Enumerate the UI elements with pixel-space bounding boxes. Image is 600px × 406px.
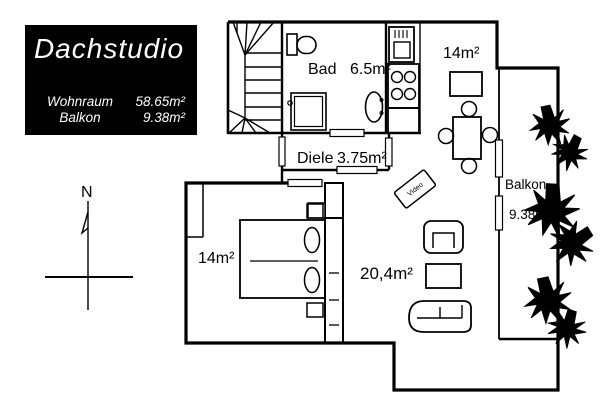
dining-chair	[462, 159, 477, 174]
dining-table	[453, 117, 481, 159]
balcony-plants	[520, 105, 600, 353]
armchair	[424, 221, 463, 253]
room-area-balkon: 9.38m²	[509, 207, 552, 222]
nightstand	[307, 303, 323, 317]
toilet-icon	[287, 34, 316, 55]
stairs-winder-top	[233, 22, 274, 55]
wall-hatch-ticks	[329, 273, 339, 325]
balcony-door-2	[496, 196, 503, 230]
double-bed	[240, 220, 325, 298]
kitchen	[388, 27, 419, 133]
cooktop-icon	[388, 64, 419, 108]
room-area-schlafzimmer: 14m²	[198, 250, 235, 267]
balcony-door-1	[496, 140, 503, 177]
sink-icon	[366, 92, 384, 122]
door-bad	[330, 130, 364, 137]
opening-diele-south	[337, 167, 377, 174]
pillow	[305, 268, 320, 293]
north-label: N	[81, 184, 93, 201]
pillow	[305, 228, 320, 253]
shower-icon	[288, 93, 326, 130]
room-label-bad: Bad	[308, 61, 336, 78]
stairs-winder-bottom	[228, 110, 270, 133]
room-area-bad: 6.5m²	[350, 61, 392, 78]
door-bedroom	[288, 180, 322, 187]
floorplan-page: Dachstudio Wohnraum 58.65m² Balkon 9.38m…	[0, 0, 600, 406]
tv-video: Video	[394, 169, 436, 208]
floorplan-drawing: N	[0, 0, 600, 406]
sideboard	[450, 72, 482, 96]
dining-chair	[439, 129, 454, 144]
bathroom	[287, 34, 383, 130]
sofa	[409, 301, 471, 332]
wall-pier	[325, 183, 343, 218]
kitchen-counter	[388, 108, 419, 133]
room-label-diele: Diele	[297, 150, 334, 167]
living-room: Video	[394, 169, 471, 332]
north-arrow: N	[45, 184, 133, 310]
stairs	[228, 22, 282, 133]
dining-chair	[483, 128, 498, 143]
dining-chair	[462, 102, 477, 117]
coffee-table	[426, 264, 461, 288]
dining-area	[439, 72, 498, 174]
plant-icon	[525, 277, 571, 323]
room-area-diele: 3.75m²	[337, 150, 387, 167]
window-diele	[279, 137, 285, 166]
oven-icon	[389, 27, 414, 62]
room-area-wohnzimmer: 20,4m²	[360, 264, 413, 283]
room-label-balkon: Balkon	[505, 177, 546, 192]
wardrobe	[186, 184, 203, 237]
room-area-kueche: 14m²	[443, 45, 480, 62]
compass-flag-icon	[82, 212, 88, 233]
